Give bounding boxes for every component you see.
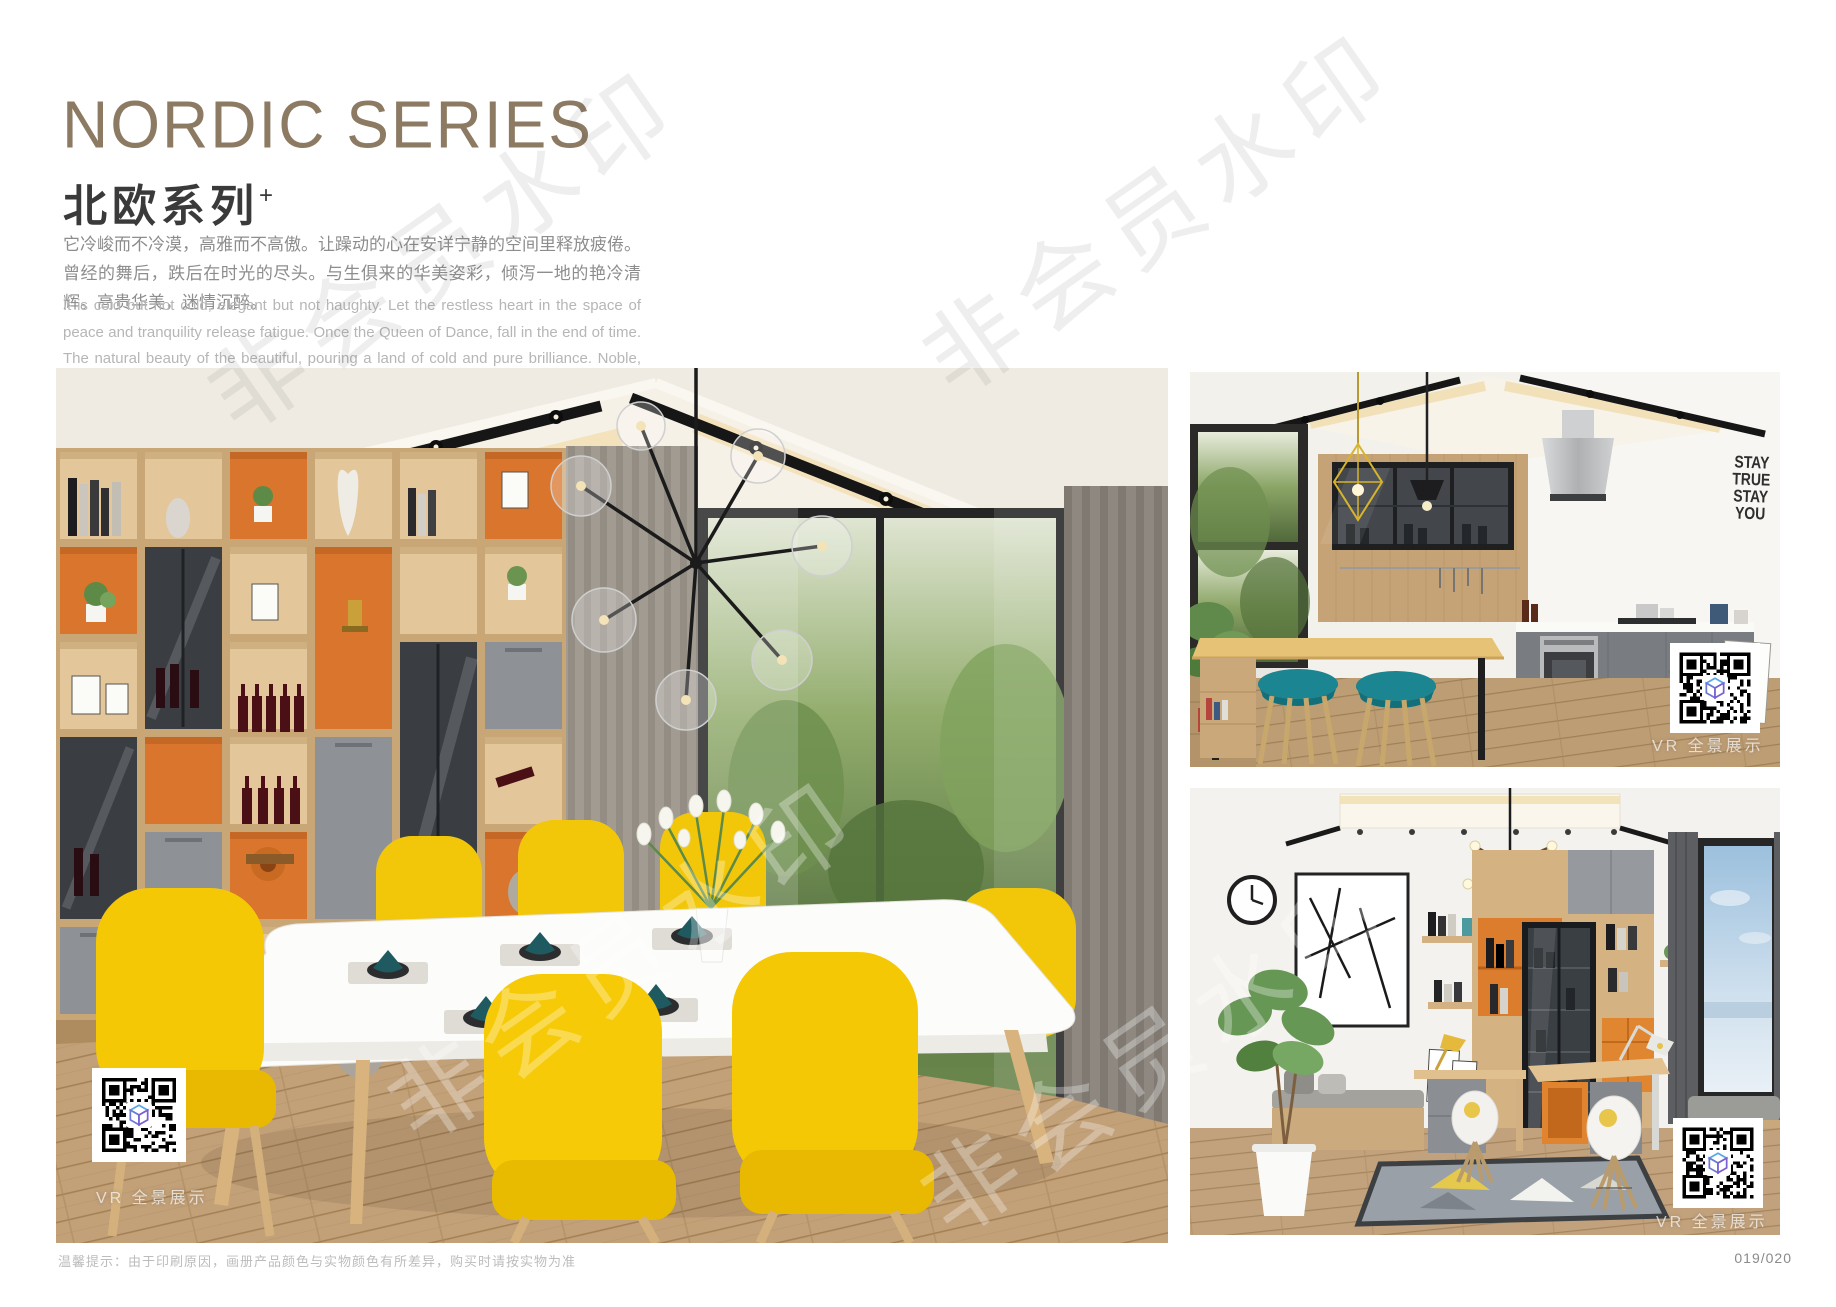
wall-clock — [1229, 877, 1275, 923]
vr-qr-code — [1670, 643, 1760, 733]
page-subtitle: 北欧系列+ — [63, 170, 273, 234]
vr-panorama-label: VR 全景展示 — [1652, 732, 1764, 756]
vr-qr-code — [1673, 1118, 1763, 1208]
page-title: NORDIC SERIES — [62, 86, 593, 163]
upper-glass-cabinet — [1318, 454, 1528, 622]
gas-cooktop — [1618, 618, 1696, 624]
vr-panorama-label: VR 全景展示 — [96, 1184, 208, 1208]
cube-3d-logo-icon — [1705, 1150, 1731, 1176]
photo-study-room: VR 全景展示 — [1190, 788, 1780, 1235]
catalog-page: NORDIC SERIES 北欧系列+ 它冷峻而不冷漠，高雅而不高傲。让躁动的心… — [0, 0, 1836, 1307]
print-disclaimer: 温馨提示：由于印刷原因，画册产品颜色与实物颜色有所差异，购买时请按实物为准 — [58, 1251, 576, 1270]
page-number: 019/020 — [1734, 1250, 1792, 1266]
cube-3d-logo-icon — [1702, 675, 1728, 701]
photo-kitchen: STAY TRUE STAY YOU VR 全景展示 — [1190, 372, 1780, 767]
abstract-art-frame — [1296, 874, 1408, 1026]
photo-dining-room: VR 全景展示 — [56, 368, 1168, 1243]
vr-qr-code — [92, 1068, 186, 1162]
study-window — [1668, 832, 1780, 1154]
wall-decal-stay-true: STAY TRUE STAY YOU — [1723, 453, 1779, 523]
cube-3d-logo-icon — [126, 1102, 152, 1128]
plus-superscript: + — [259, 182, 273, 209]
vr-panorama-label: VR 全景展示 — [1656, 1208, 1768, 1232]
watermark-text: 非会员水印 — [890, 0, 1420, 422]
dining-room-illustration — [56, 368, 1168, 1243]
